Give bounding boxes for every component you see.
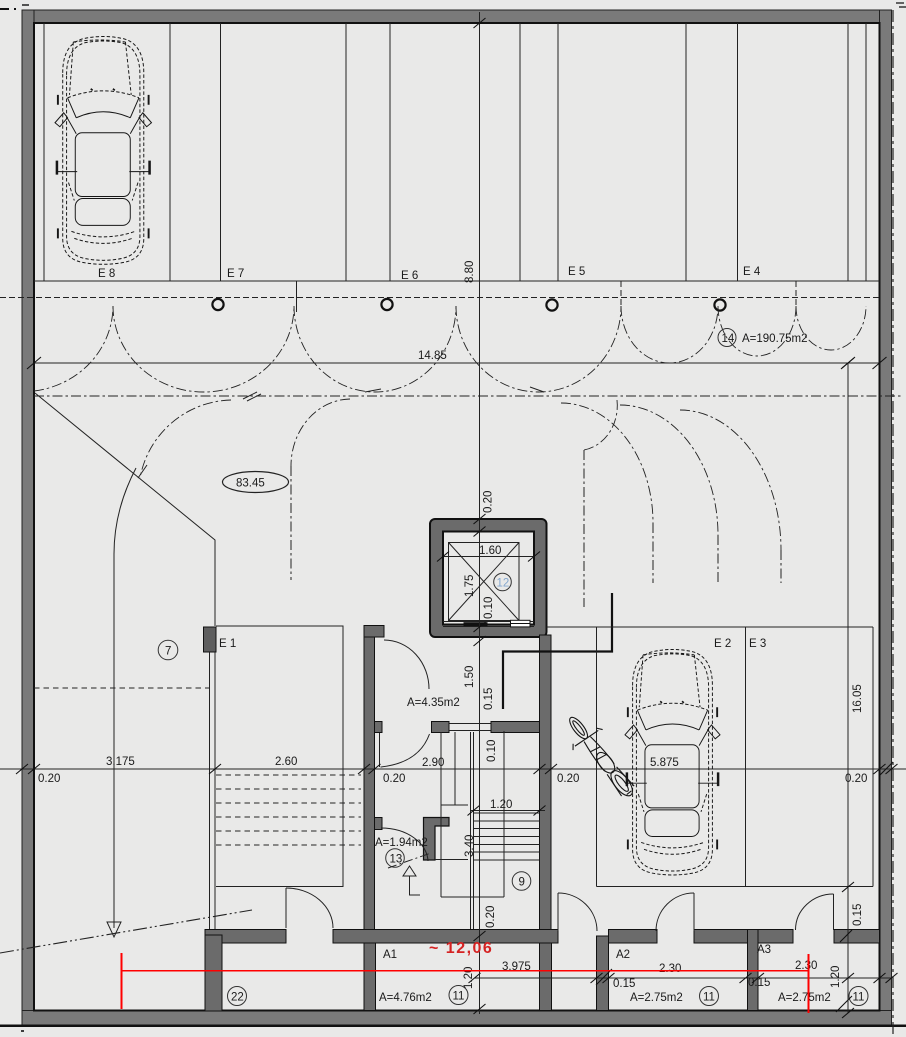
svg-text:1.20: 1.20 (830, 966, 842, 988)
svg-text:12: 12 (497, 578, 510, 590)
svg-text:22: 22 (231, 992, 244, 1004)
svg-text:E 3: E 3 (749, 638, 766, 650)
svg-text:3.175: 3.175 (106, 756, 135, 768)
svg-text:0.20: 0.20 (38, 773, 60, 785)
svg-text:A1: A1 (383, 949, 397, 961)
svg-text:A2: A2 (616, 949, 630, 961)
svg-text:E 5: E 5 (568, 266, 585, 278)
svg-text:2.30: 2.30 (659, 963, 681, 975)
svg-text:2.60: 2.60 (275, 756, 297, 768)
svg-text:0.15: 0.15 (852, 904, 864, 926)
svg-text:11: 11 (703, 992, 715, 1004)
svg-text:1.60: 1.60 (479, 545, 501, 557)
svg-text:E 2: E 2 (714, 638, 731, 650)
svg-text:A=2.75m2: A=2.75m2 (630, 992, 683, 1004)
svg-text:A=4.35m2: A=4.35m2 (407, 697, 460, 709)
svg-text:A=4.76m2: A=4.76m2 (379, 992, 432, 1004)
svg-text:11: 11 (453, 991, 465, 1003)
svg-text:3.40: 3.40 (464, 835, 476, 857)
svg-text:E 4: E 4 (743, 266, 761, 278)
svg-text:0.10: 0.10 (483, 597, 495, 619)
svg-text:5.875: 5.875 (650, 757, 679, 769)
svg-text:9: 9 (519, 877, 525, 889)
svg-text:0.20: 0.20 (383, 773, 405, 785)
svg-text:83.45: 83.45 (236, 478, 265, 490)
svg-text:0.20: 0.20 (483, 491, 495, 513)
svg-text:~ 12,06: ~ 12,06 (429, 940, 493, 957)
svg-text:A=190.75m2: A=190.75m2 (742, 333, 808, 345)
svg-text:A=1.94m2: A=1.94m2 (375, 837, 428, 849)
svg-text:1.20: 1.20 (490, 799, 512, 811)
svg-text:0.15: 0.15 (748, 977, 770, 989)
svg-text:0.20: 0.20 (485, 906, 497, 928)
svg-text:E 7: E 7 (227, 268, 244, 280)
svg-text:E 8: E 8 (98, 268, 115, 280)
svg-text:0.20: 0.20 (557, 773, 579, 785)
svg-text:14.85: 14.85 (418, 350, 447, 362)
svg-text:A=2.75m2: A=2.75m2 (778, 992, 831, 1004)
svg-text:0.10: 0.10 (486, 740, 498, 762)
svg-text:1.50: 1.50 (464, 666, 476, 688)
svg-text:7: 7 (165, 646, 171, 658)
svg-text:1.75: 1.75 (464, 575, 476, 597)
svg-text:14: 14 (722, 333, 735, 345)
svg-text:11: 11 (853, 992, 865, 1004)
svg-text:A3: A3 (757, 944, 771, 956)
svg-text:16.05: 16.05 (852, 684, 864, 713)
svg-text:0.15: 0.15 (613, 978, 635, 990)
svg-text:E 1: E 1 (219, 638, 236, 650)
svg-text:0.15: 0.15 (483, 688, 495, 710)
svg-text:8.80: 8.80 (464, 261, 476, 283)
svg-text:2.90: 2.90 (422, 757, 444, 769)
svg-text:E 6: E 6 (401, 270, 418, 282)
